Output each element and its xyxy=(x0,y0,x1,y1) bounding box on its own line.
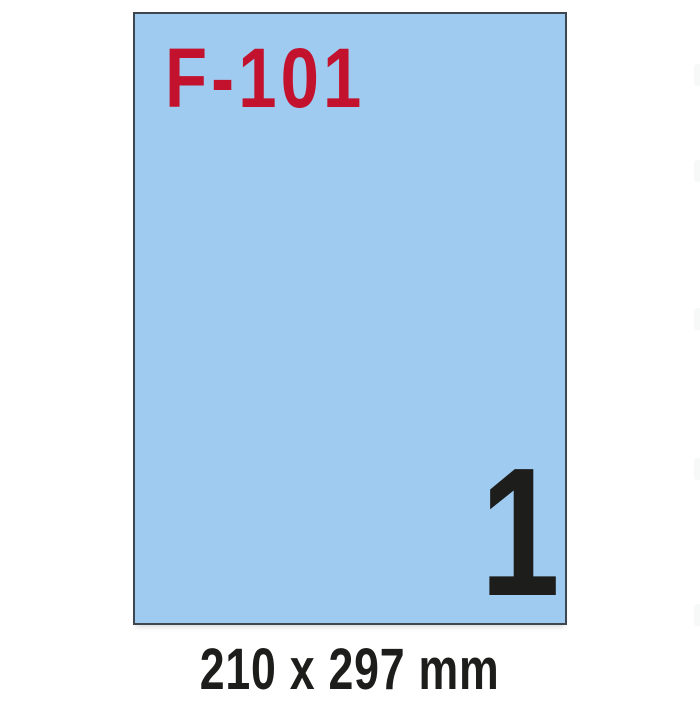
edge-artifact xyxy=(694,308,700,330)
edge-artifact xyxy=(694,604,700,626)
sheet-dimensions-text: 210 x 297 mm xyxy=(200,641,500,699)
edge-artifact xyxy=(694,64,700,86)
edge-artifact xyxy=(694,160,700,182)
product-image: F-101 1 210 x 297 mm xyxy=(0,0,700,700)
product-code: F-101 xyxy=(165,36,365,120)
edge-artifact xyxy=(694,458,700,480)
label-sheet: F-101 1 xyxy=(133,12,567,625)
sheet-dimensions: 210 x 297 mm xyxy=(0,641,700,699)
labels-per-sheet-count: 1 xyxy=(481,440,560,623)
